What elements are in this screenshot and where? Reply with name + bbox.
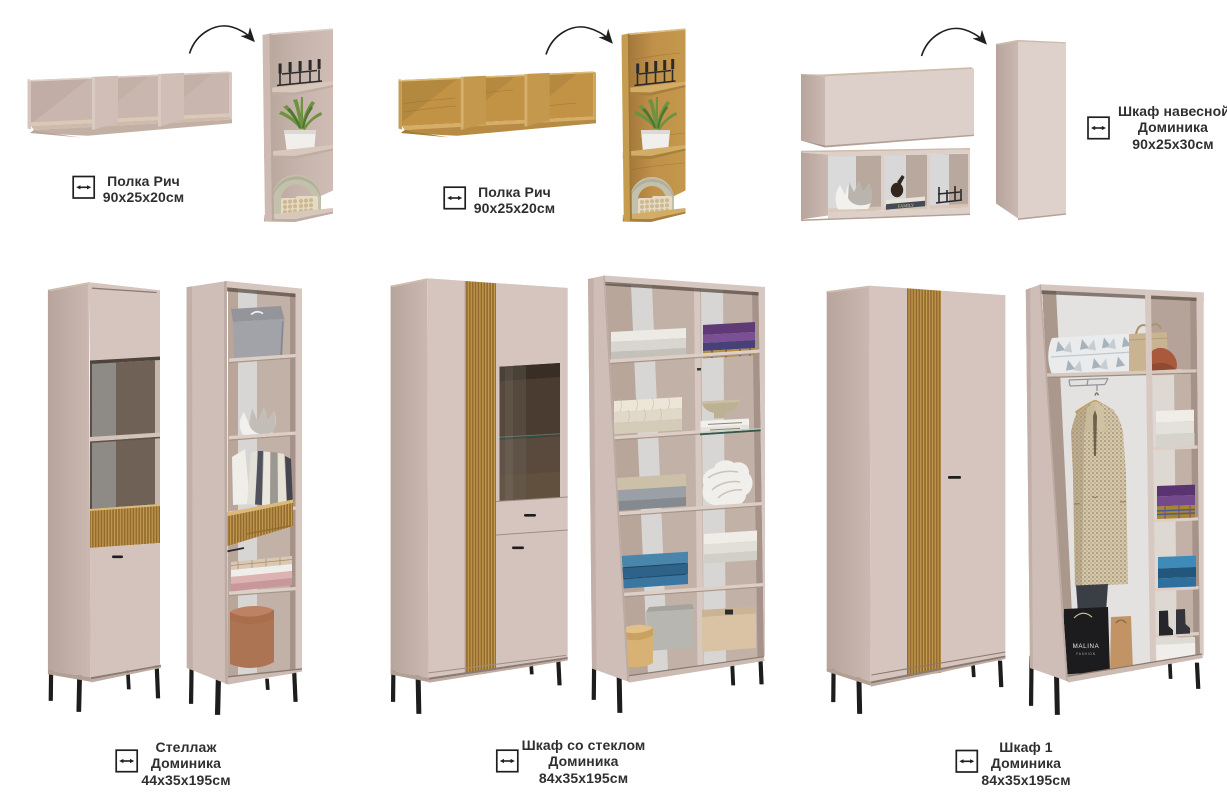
svg-text:FASHION: FASHION (1076, 652, 1096, 656)
svg-text:MALINA: MALINA (1073, 643, 1100, 650)
